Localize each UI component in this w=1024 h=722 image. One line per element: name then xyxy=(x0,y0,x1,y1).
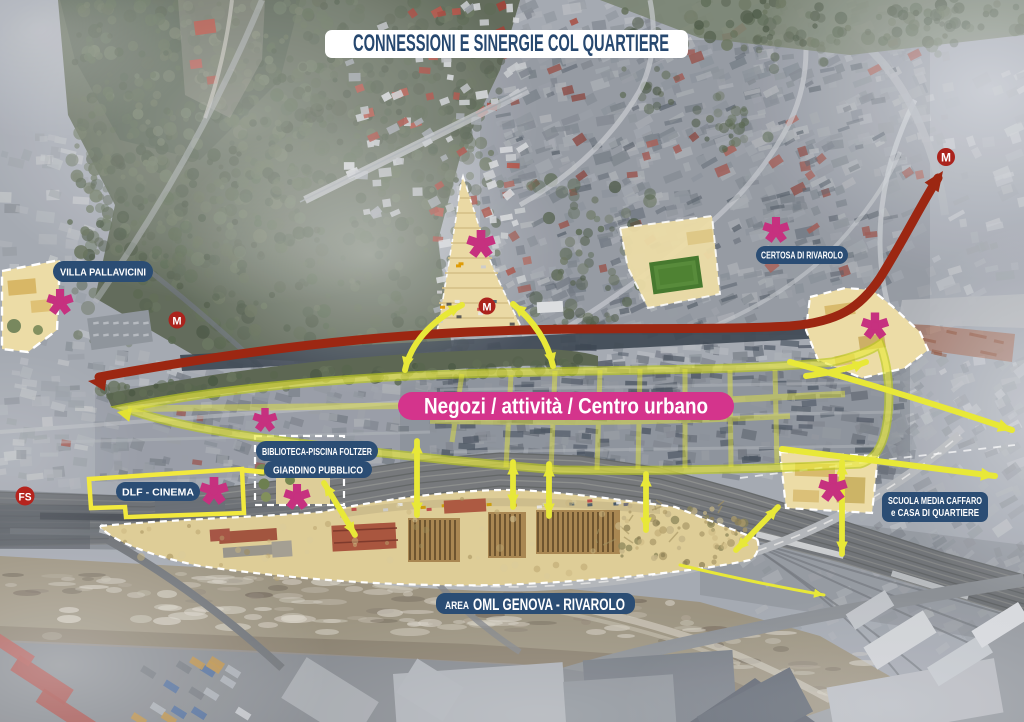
svg-text:DLF - CINEMA: DLF - CINEMA xyxy=(122,486,194,498)
svg-text:e CASA DI QUARTIERE: e CASA DI QUARTIERE xyxy=(891,508,979,519)
svg-text:AREA: AREA xyxy=(445,600,469,612)
svg-text:CERTOSA DI RIVAROLO: CERTOSA DI RIVAROLO xyxy=(761,251,843,262)
svg-text:Negozi / attività / Centro urb: Negozi / attività / Centro urbano xyxy=(424,394,708,419)
svg-text:BIBLIOTECA-PISCINA FOLTZER: BIBLIOTECA-PISCINA FOLTZER xyxy=(262,446,372,458)
svg-text:M: M xyxy=(172,316,181,328)
svg-text:VILLA PALLAVICINI: VILLA PALLAVICINI xyxy=(60,266,146,278)
svg-text:FS: FS xyxy=(19,492,32,504)
svg-text:M: M xyxy=(941,151,951,165)
svg-text:OML GENOVA - RIVAROLO: OML GENOVA - RIVAROLO xyxy=(473,596,625,614)
svg-text:GIARDINO PUBBLICO: GIARDINO PUBBLICO xyxy=(273,464,363,476)
svg-text:SCUOLA MEDIA CAFFARO: SCUOLA MEDIA CAFFARO xyxy=(888,496,982,507)
svg-text:CONNESSIONI E SINERGIE COL QUA: CONNESSIONI E SINERGIE COL QUARTIERE xyxy=(353,30,669,57)
svg-text:M: M xyxy=(482,302,491,314)
